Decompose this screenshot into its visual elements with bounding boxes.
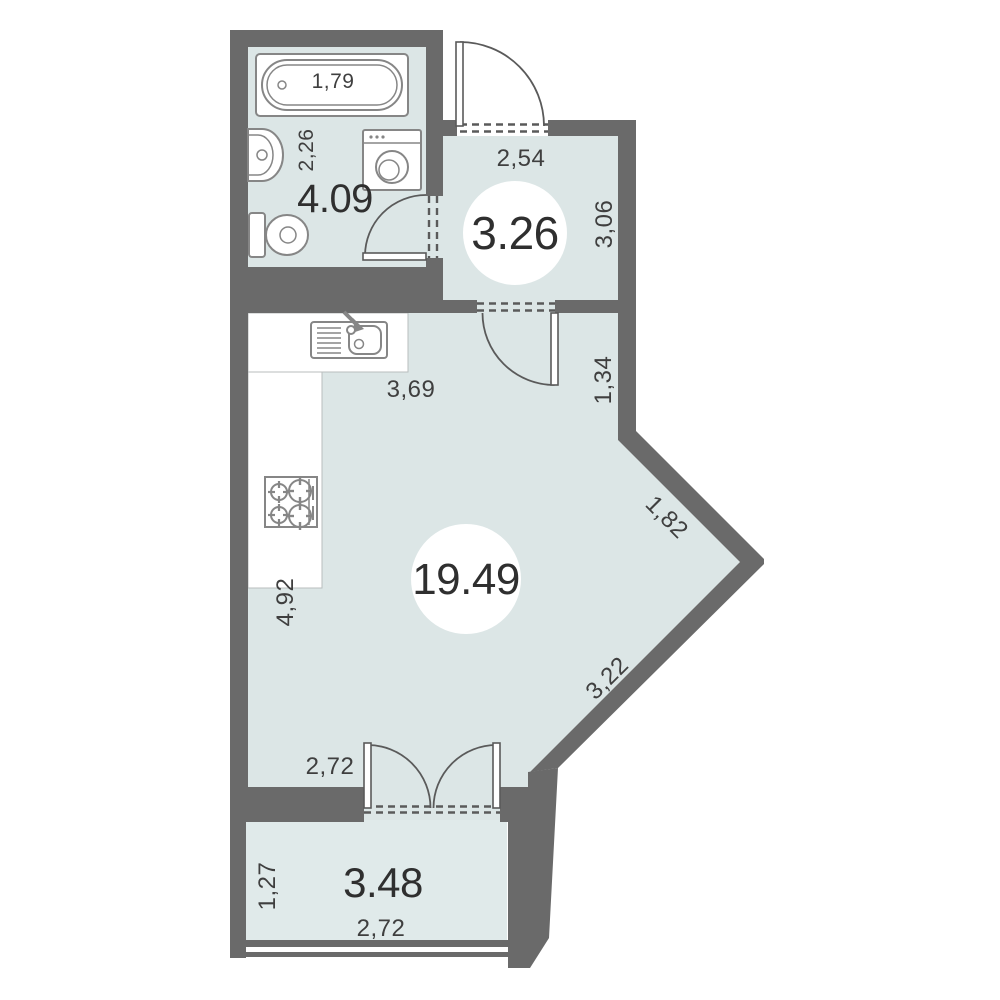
wall-left — [230, 30, 248, 822]
dim-hall-width: 2,54 — [497, 145, 546, 172]
dim-tub-length: 1,79 — [312, 70, 355, 93]
hall-area-label: 3.26 — [471, 207, 559, 259]
wall-bathroom-right-lower — [426, 258, 443, 313]
balcony-area-label: 3.48 — [343, 859, 423, 906]
bathroom-area-label: 4.09 — [297, 177, 373, 221]
dim-kitchen-wall: 3,69 — [387, 376, 436, 403]
wall-balcony-left — [230, 808, 246, 958]
dim-hall-depth: 3,06 — [591, 200, 618, 249]
wall-balcony-door-jamb — [500, 787, 528, 822]
hall-door-leaf — [551, 313, 558, 385]
wall-hall-bottom-left — [443, 300, 477, 313]
washbasin-icon — [248, 129, 283, 181]
dim-hall-passage: 1,34 — [590, 356, 617, 405]
wall-top — [230, 30, 443, 47]
dim-bathroom-width: 2,26 — [295, 129, 318, 172]
balcony-door-right-leaf — [493, 743, 500, 808]
wall-entry-jamb — [443, 120, 457, 136]
living-area-label: 19.49 — [412, 555, 520, 604]
wall-hall-right — [618, 120, 636, 431]
dim-living-left: 4,92 — [272, 578, 299, 627]
floor-plan: 1,79 2,26 4.09 2,54 3.26 3,06 1,34 3,69 … — [0, 0, 1000, 1000]
balcony-door-opening — [364, 787, 500, 820]
floor-plan-svg: 1,79 2,26 4.09 2,54 3.26 3,06 1,34 3,69 … — [0, 0, 1000, 1000]
wall-bathroom-bottom — [230, 267, 443, 313]
dim-balcony-width: 2,72 — [357, 915, 406, 942]
cooktop-icon — [265, 477, 317, 530]
bathroom-door-leaf — [363, 253, 426, 260]
entrance-door-leaf — [456, 42, 463, 126]
wall-bathroom-right-upper — [426, 30, 443, 196]
dim-balcony-door: 2,72 — [306, 753, 355, 780]
wall-living-bottom — [230, 787, 364, 822]
dim-balcony-depth: 1,27 — [254, 862, 281, 911]
wall-hall-bottom-right — [555, 300, 636, 313]
balcony-window-outer — [246, 952, 508, 957]
balcony-door-left-leaf — [364, 743, 371, 808]
